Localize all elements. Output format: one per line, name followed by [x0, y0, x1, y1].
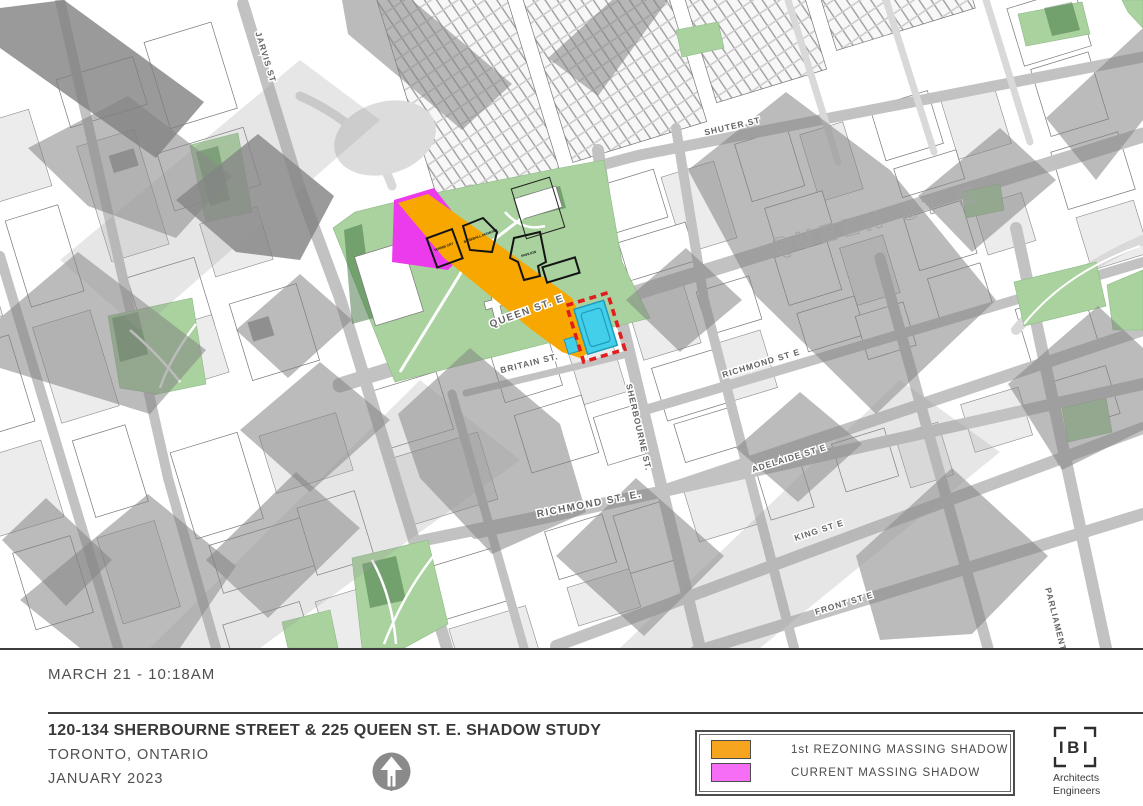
shadow-study-sheet: JARVIS STSHUTER STQUEEN ST. EQUEEN ST EB… — [0, 0, 1143, 806]
north-arrow-icon — [372, 752, 411, 791]
title-divider — [48, 712, 1143, 714]
ibi-logo-mark: IBI — [1053, 726, 1097, 768]
legend-item-label: CURRENT MASSING SHADOW — [791, 767, 980, 779]
legend: 1st REZONING MASSING SHADOW CURRENT MASS… — [695, 730, 1015, 796]
legend-item-rezoning: 1st REZONING MASSING SHADOW — [711, 740, 1008, 759]
rezoning-shadow-swatch — [711, 740, 751, 759]
svg-text:IBI: IBI — [1059, 738, 1091, 757]
map-drawing: JARVIS STSHUTER STQUEEN ST. EQUEEN ST EB… — [0, 0, 1143, 648]
sheet-location: TORONTO, ONTARIO — [48, 747, 209, 763]
frame-timestamp: MARCH 21 - 10:18AM — [48, 666, 215, 683]
current-shadow-swatch — [711, 763, 751, 782]
ibi-logo: IBI Architects Engineers — [1053, 726, 1123, 798]
sheet-title: 120-134 SHERBOURNE STREET & 225 QUEEN ST… — [48, 722, 601, 740]
logo-line-engineers: Engineers — [1053, 785, 1123, 798]
logo-line-architects: Architects — [1053, 772, 1123, 785]
legend-item-current: CURRENT MASSING SHADOW — [711, 763, 980, 782]
shadow-study-map: JARVIS STSHUTER STQUEEN ST. EQUEEN ST EB… — [0, 0, 1143, 650]
legend-item-label: 1st REZONING MASSING SHADOW — [791, 744, 1008, 756]
sheet-date: JANUARY 2023 — [48, 771, 163, 787]
